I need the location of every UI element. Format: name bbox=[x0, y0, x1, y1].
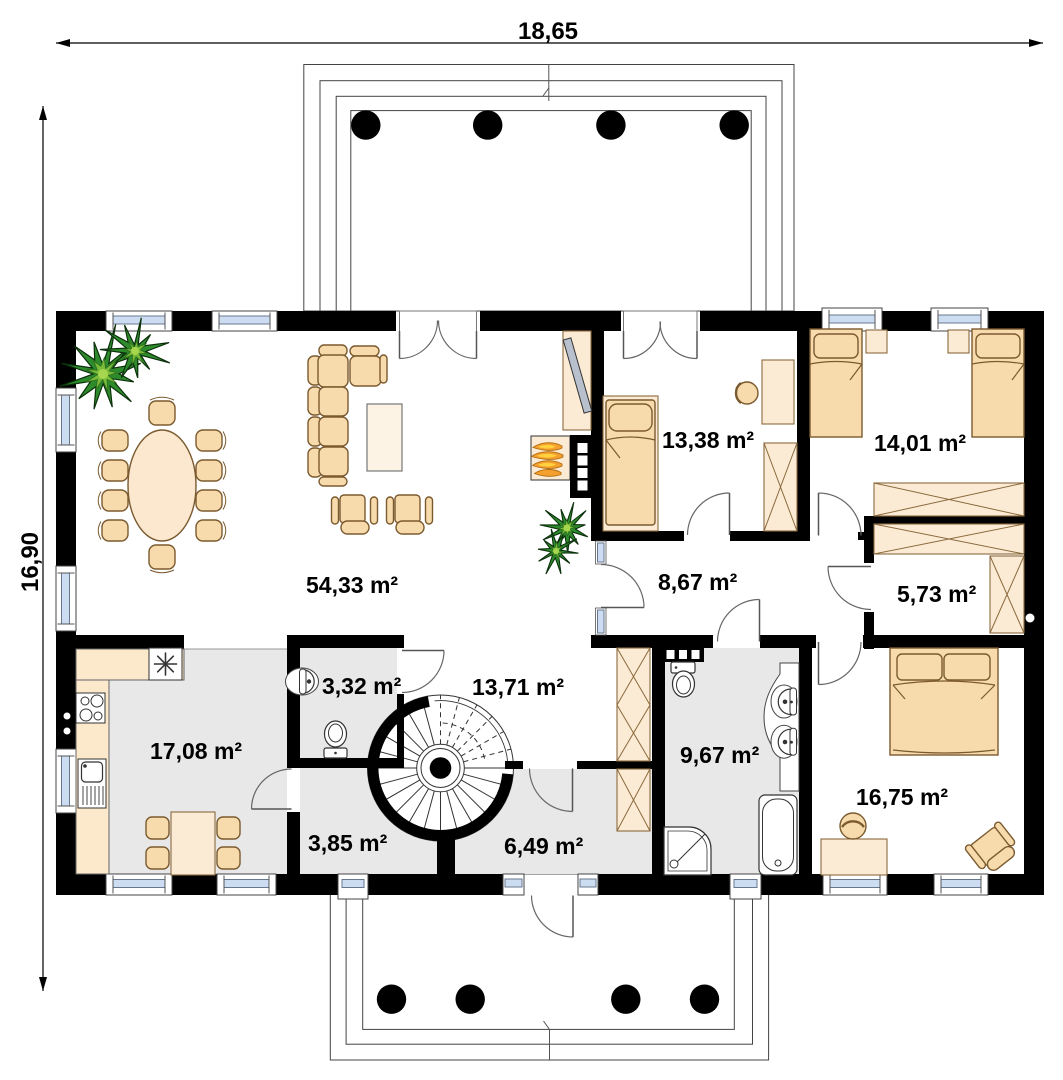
svg-text:16,90: 16,90 bbox=[17, 532, 44, 592]
svg-text:14,01 m²: 14,01 m² bbox=[874, 430, 966, 456]
svg-text:8,67 m²: 8,67 m² bbox=[658, 569, 738, 595]
svg-text:54,33 m²: 54,33 m² bbox=[306, 572, 398, 598]
svg-text:5,73 m²: 5,73 m² bbox=[897, 581, 977, 607]
svg-text:17,08 m²: 17,08 m² bbox=[150, 738, 242, 764]
svg-text:3,85 m²: 3,85 m² bbox=[308, 830, 388, 856]
svg-text:3,32 m²: 3,32 m² bbox=[322, 673, 402, 699]
svg-text:16,75 m²: 16,75 m² bbox=[856, 784, 948, 810]
svg-text:13,71 m²: 13,71 m² bbox=[472, 674, 564, 700]
svg-text:6,49 m²: 6,49 m² bbox=[504, 833, 584, 859]
svg-text:13,38 m²: 13,38 m² bbox=[662, 427, 754, 453]
svg-text:9,67 m²: 9,67 m² bbox=[680, 742, 760, 768]
svg-text:18,65: 18,65 bbox=[518, 18, 578, 45]
